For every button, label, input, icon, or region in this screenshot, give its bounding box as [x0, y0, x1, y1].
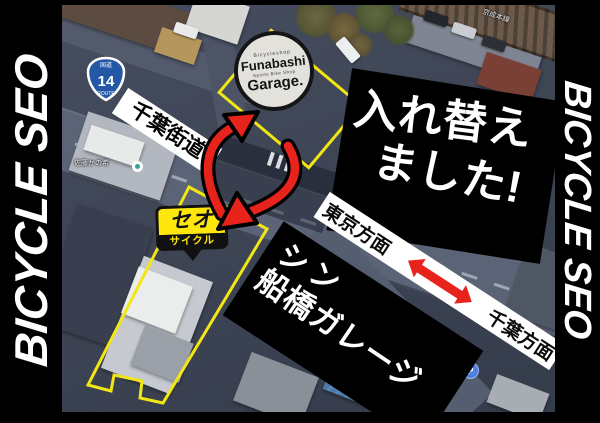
poi-label: 佐藤かの希	[74, 158, 109, 168]
building	[486, 374, 549, 412]
right-banner-text: BICYCLE SEO	[546, 0, 600, 423]
aerial-map: 佐藤かの希 京成本線 P 14 国道 14 ROUTE 千葉街道 Bicycle…	[62, 5, 555, 412]
seo-cycle-logo: セオ サイクル	[155, 204, 229, 262]
tree	[384, 15, 414, 45]
logo-name-bottom: Garage.	[247, 74, 304, 94]
poi-marker-icon	[132, 161, 143, 172]
left-banner-bar: BICYCLE SEO	[0, 0, 62, 420]
shield-number: 14	[98, 73, 115, 90]
route-14-shield-icon: 国道 14 ROUTE	[86, 56, 126, 102]
shield-route-word: ROUTE	[97, 91, 115, 97]
left-banner-text: BICYCLE SEO	[0, 0, 62, 423]
right-banner-bar: BICYCLE SEO	[555, 0, 600, 420]
top-border	[0, 0, 600, 5]
shield-country-label: 国道	[100, 61, 112, 69]
seo-logo-name: セオ	[155, 204, 228, 235]
seo-logo-pointer	[184, 250, 202, 262]
bottom-border	[0, 412, 600, 420]
seo-logo-sub: サイクル	[156, 233, 229, 252]
